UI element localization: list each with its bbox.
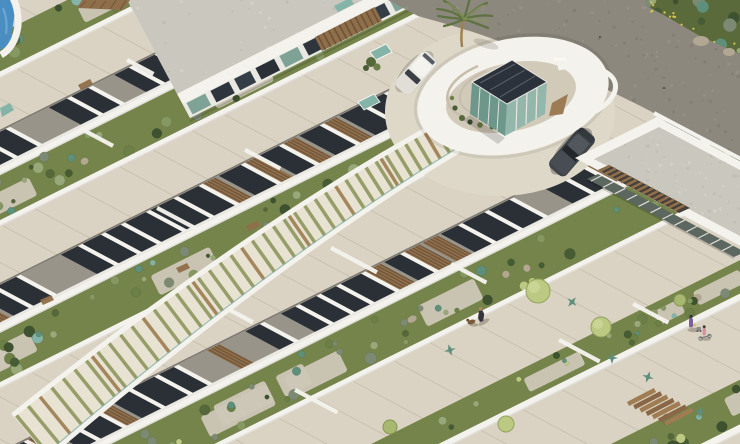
person-head [689, 315, 692, 318]
stroller-wheel [700, 330, 702, 332]
person-head [479, 307, 482, 310]
child-pink [703, 328, 707, 336]
bird-speck [662, 87, 665, 89]
dog-head [466, 319, 469, 322]
person-purple [689, 318, 693, 328]
ring-plant [450, 96, 454, 100]
rock [723, 48, 735, 56]
stroller [697, 327, 702, 330]
child-head [703, 325, 706, 328]
bag [693, 324, 696, 327]
small-palm-bush [373, 63, 380, 70]
aerial-architectural-render [0, 0, 740, 444]
small-palm-bush [363, 65, 369, 71]
ring-plant [452, 105, 457, 110]
stroller-wheel [697, 330, 699, 332]
aerial-render-viewport [0, 0, 740, 444]
bird-speck [599, 36, 601, 38]
rock [693, 36, 709, 46]
